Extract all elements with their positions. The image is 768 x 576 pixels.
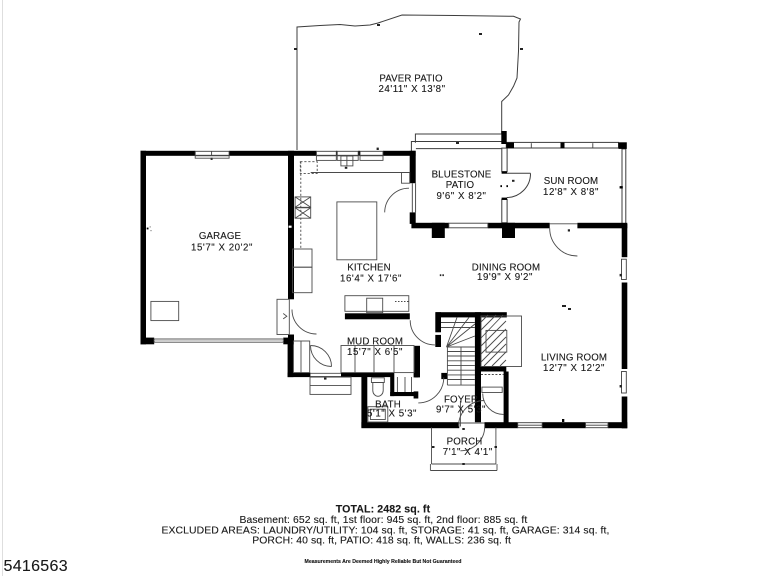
svg-text:MUD ROOM: MUD ROOM bbox=[347, 337, 403, 348]
svg-text:5416563: 5416563 bbox=[4, 558, 68, 575]
svg-text:PORCH: 40 sq. ft, PATIO: 418 s: PORCH: 40 sq. ft, PATIO: 418 sq. ft, WAL… bbox=[252, 536, 511, 547]
svg-text:BLUESTONE: BLUESTONE bbox=[432, 170, 492, 181]
svg-text:9'6" X 8'2": 9'6" X 8'2" bbox=[436, 191, 486, 202]
svg-text:7'1" X 4'1": 7'1" X 4'1" bbox=[443, 447, 493, 458]
svg-text:15'7" X 6'5": 15'7" X 6'5" bbox=[347, 347, 403, 358]
svg-text:GARAGE: GARAGE bbox=[199, 231, 242, 242]
svg-text:5'1" X 5'3": 5'1" X 5'3" bbox=[367, 409, 417, 420]
svg-text:KITCHEN: KITCHEN bbox=[347, 263, 391, 274]
svg-text:16'4" X 17'6": 16'4" X 17'6" bbox=[340, 273, 402, 284]
svg-text:PAVER PATIO: PAVER PATIO bbox=[379, 74, 443, 85]
svg-text:TOTAL: 2482 sq. ft: TOTAL: 2482 sq. ft bbox=[336, 503, 431, 515]
svg-text:12'7" X 12'2": 12'7" X 12'2" bbox=[543, 363, 605, 374]
svg-text:Measurements Are Deemed Highly: Measurements Are Deemed Highly Reliable … bbox=[305, 559, 462, 565]
svg-text:12'8" X 8'8": 12'8" X 8'8" bbox=[543, 187, 599, 198]
svg-text:PATIO: PATIO bbox=[446, 180, 475, 191]
svg-text:LIVING ROOM: LIVING ROOM bbox=[541, 353, 607, 364]
svg-text:9'7" X 5'3": 9'7" X 5'3" bbox=[436, 405, 486, 416]
svg-text:SUN ROOM: SUN ROOM bbox=[544, 176, 598, 187]
svg-text:19'9" X 9'2": 19'9" X 9'2" bbox=[477, 272, 533, 283]
svg-text:15'7" X 20'2": 15'7" X 20'2" bbox=[191, 243, 253, 254]
svg-text:24'11" X 13'8": 24'11" X 13'8" bbox=[378, 84, 445, 95]
